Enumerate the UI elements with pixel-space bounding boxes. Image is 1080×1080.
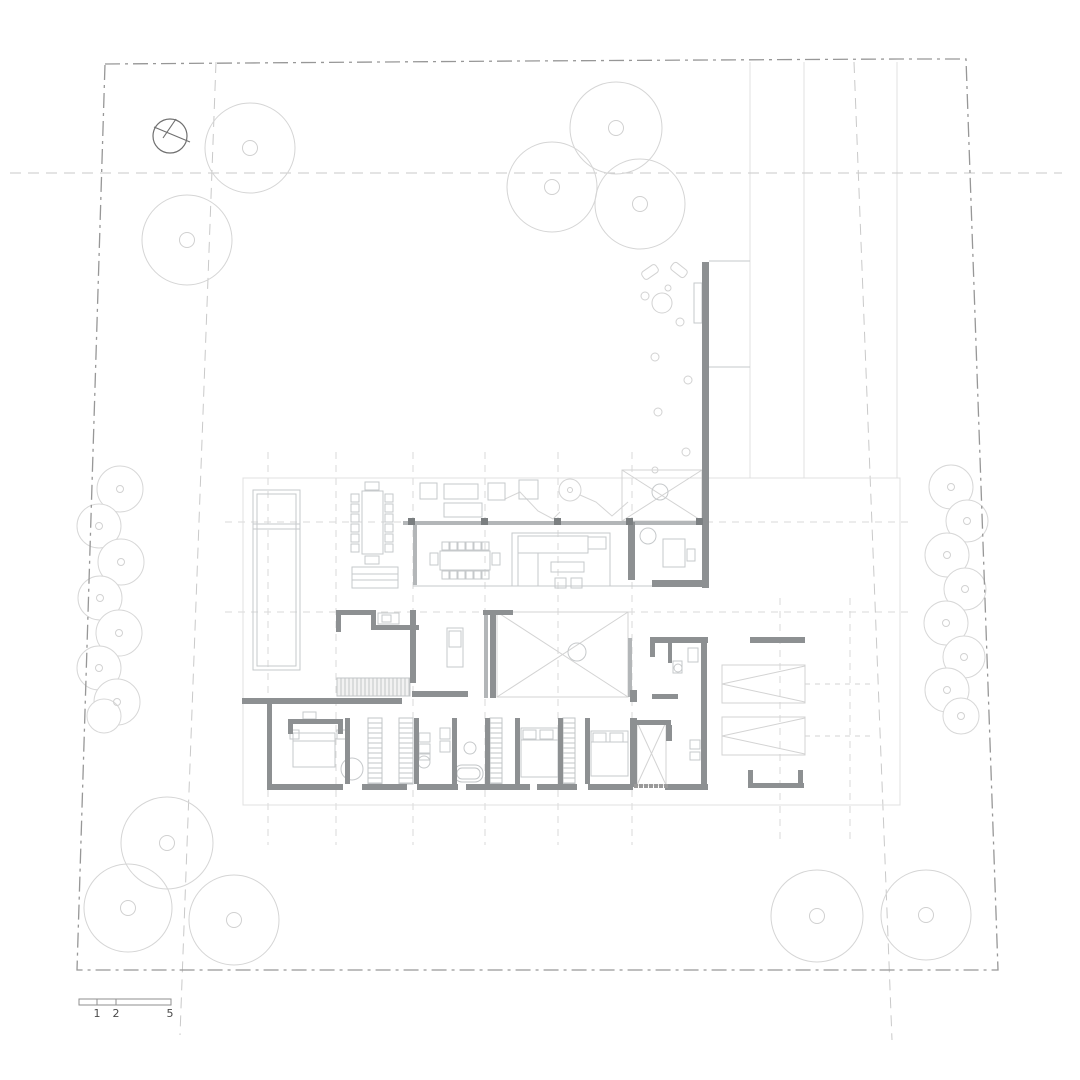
scale-bar-label-5: 5: [167, 1007, 174, 1020]
stepping-stone-slab: [640, 261, 688, 280]
stairs: [337, 678, 410, 696]
scale-bar-label-1: 1: [94, 1007, 101, 1020]
plan-layers: [10, 59, 1062, 1040]
setback-dashed-line: [10, 62, 1062, 1040]
wall: [242, 262, 805, 790]
court-diagonal-line: [497, 470, 805, 785]
planting-wave-line: [505, 492, 628, 519]
scale-bar-label-2: 2: [113, 1007, 120, 1020]
court-outline: [497, 470, 805, 785]
entry-threshold-dot: [634, 784, 668, 788]
site-plan-svg: 1 2 5: [0, 0, 1080, 1080]
site-edge-line: [750, 62, 897, 478]
furniture-line: [253, 261, 750, 742]
driveway-dashed-line: [805, 684, 872, 736]
scale-bar-body: [79, 999, 171, 1005]
wall-medium: [403, 521, 703, 698]
north-symbol-circle: [153, 119, 187, 153]
property-boundary: [77, 59, 998, 970]
stepping-stone: [641, 285, 692, 473]
bathtub: [454, 765, 483, 782]
floor-plan-canvas: 1 2 5: [0, 0, 1080, 1080]
